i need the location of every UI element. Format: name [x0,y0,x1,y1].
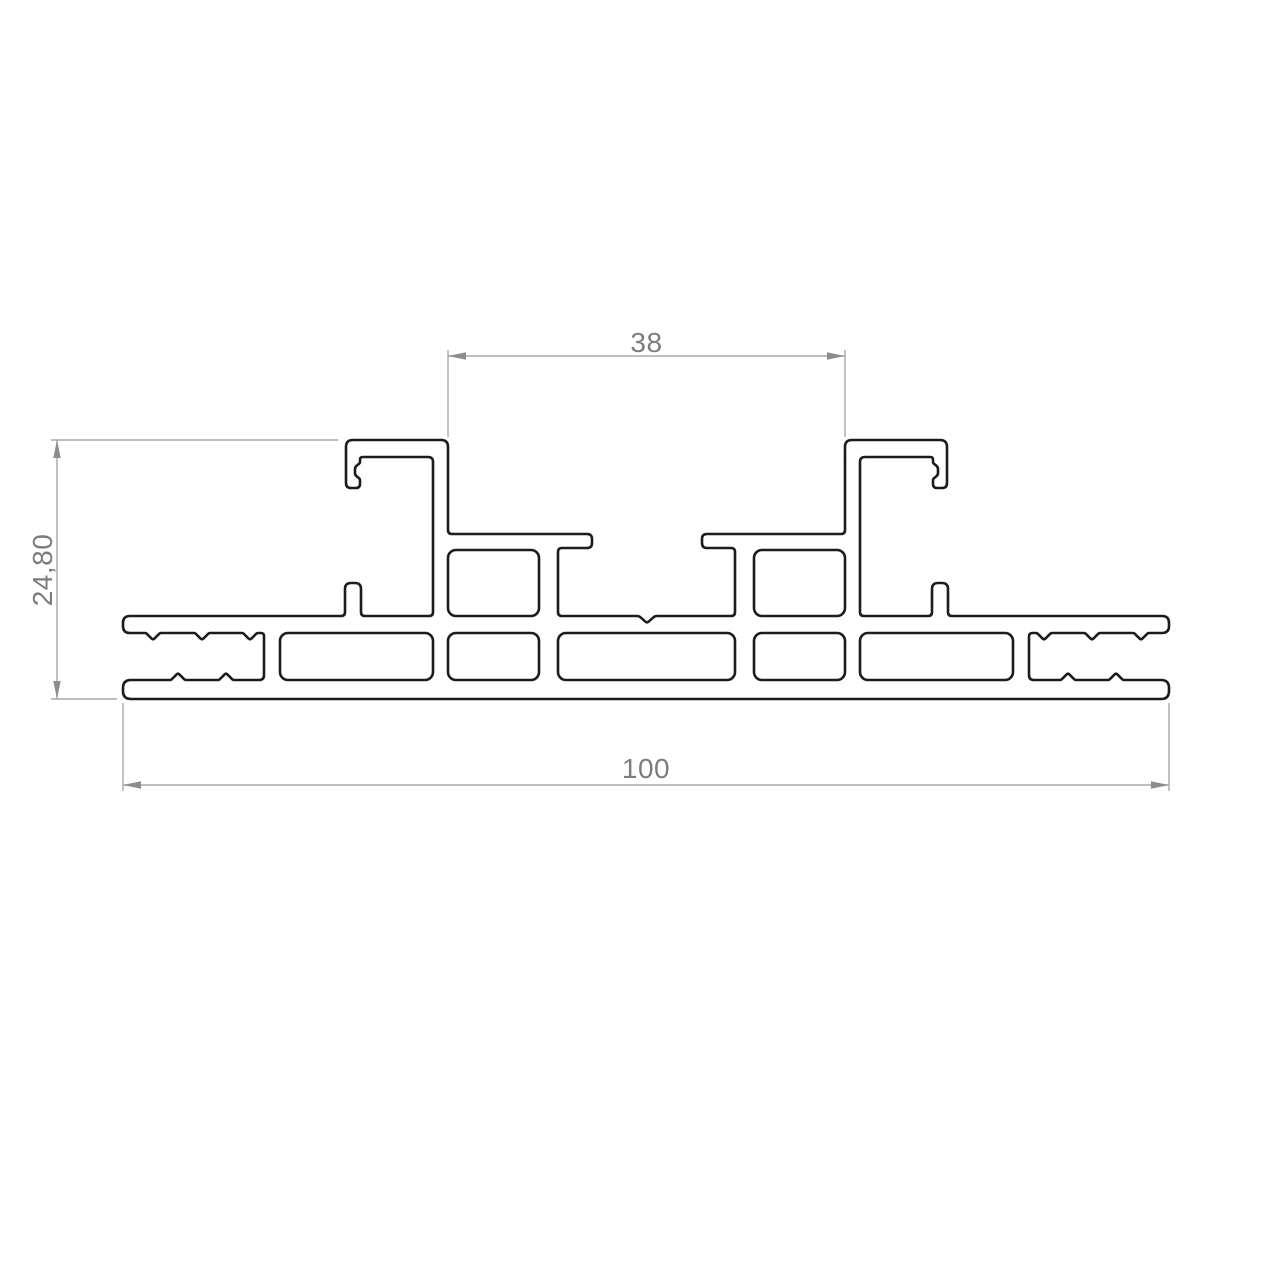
cell-lower-4 [754,633,845,680]
arrowhead-right [1151,781,1169,789]
cell-lower-5 [860,633,1013,680]
cell-upper-left [448,550,539,616]
arrowhead-right [827,352,845,360]
dimension-value: 100 [622,753,670,784]
arrowhead-top [53,440,60,458]
technical-drawing: 38 24,80 100 [0,0,1280,1271]
extrusion-profile [123,440,1169,699]
dimension-top-slot-width: 38 [448,327,845,437]
drawing-canvas: 38 24,80 100 [0,0,1280,1271]
dimension-value: 24,80 [27,534,58,607]
dimension-overall-height: 24,80 [27,440,338,699]
dimension-value: 38 [630,327,662,358]
dimension-overall-width: 100 [123,703,1169,791]
arrowhead-left [448,352,466,360]
cell-lower-3 [558,633,735,680]
cell-lower-1 [280,633,433,680]
arrowhead-bottom [53,681,60,699]
cell-upper-right [754,550,845,616]
cell-lower-2 [448,633,539,680]
arrowhead-left [123,781,141,789]
